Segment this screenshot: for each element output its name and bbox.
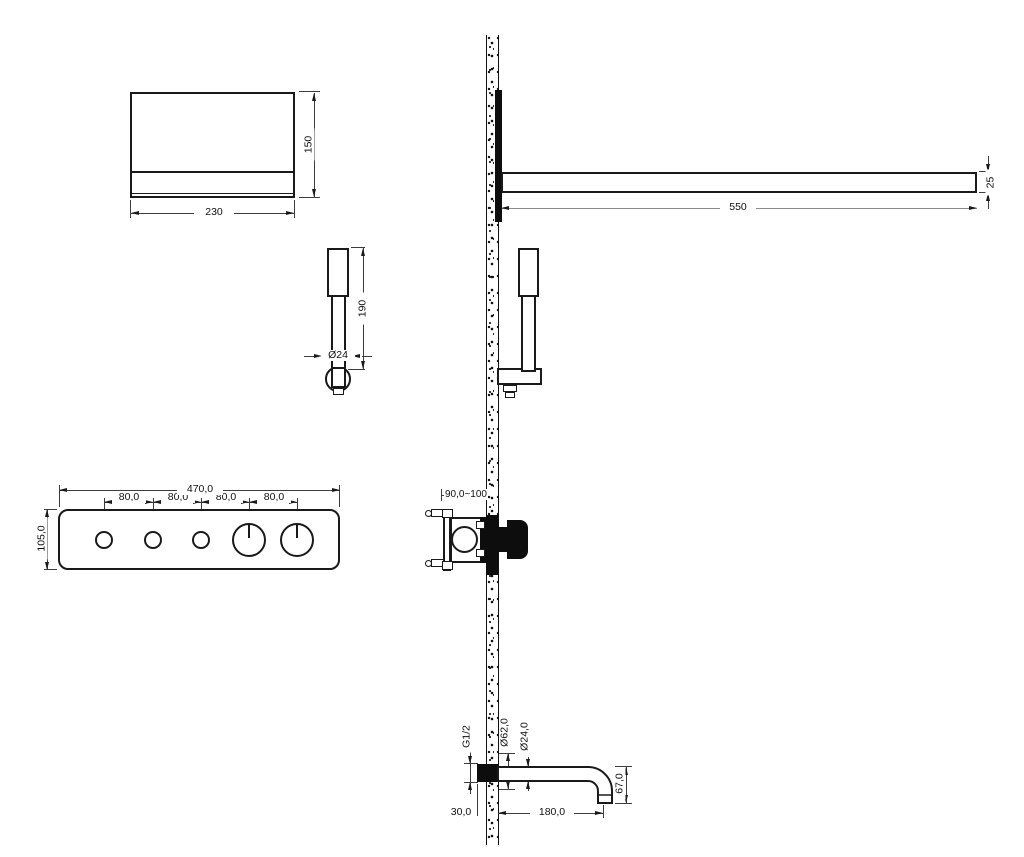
dim-knob-spacing-1: 80,0 (112, 492, 146, 503)
arrowhead (969, 206, 977, 210)
arrowhead (45, 562, 49, 570)
arrowhead (59, 488, 67, 492)
shower-head-rim-line (132, 193, 293, 194)
valve-knob (507, 520, 528, 559)
dim-install-depth: 90,0~100 (444, 489, 488, 500)
hand-shower-head (518, 248, 539, 297)
extension-line (603, 805, 604, 818)
valve-inlet-cap-bottom (425, 560, 432, 567)
knob-indicator-line (248, 524, 250, 538)
panel-button-1 (95, 531, 113, 549)
arrowhead (506, 781, 510, 789)
arrowhead (468, 756, 472, 764)
valve-clip-bottom (476, 549, 485, 557)
dim-panel-width: 470,0 (177, 484, 223, 495)
technical-drawing-canvas: 150 230 550 25 Ø24 (0, 0, 1024, 857)
arrowhead (498, 811, 506, 815)
dim-spout-thread: G1/2 (462, 721, 473, 753)
dim-panel-height: 105,0 (37, 518, 48, 560)
valve-clip-top (476, 521, 485, 529)
arrowhead (332, 488, 340, 492)
arrowhead (249, 500, 257, 504)
shower-head-body (130, 92, 295, 198)
dimension-line (304, 356, 314, 357)
spout-wall-fitting (477, 764, 498, 782)
arrowhead (468, 782, 472, 790)
arrowhead (201, 500, 209, 504)
dim-spout-wall-inset: 30,0 (445, 807, 477, 818)
dim-arm-thickness: 25 (986, 170, 997, 196)
bracket-outlet-tip (505, 392, 515, 398)
arrowhead (131, 211, 139, 215)
arrowhead (45, 509, 49, 517)
arrowhead (286, 211, 294, 215)
extension-line (130, 200, 131, 218)
arm-wall-mount-bar (495, 90, 502, 222)
arrowhead (145, 500, 153, 504)
arrowhead (595, 811, 603, 815)
extension-line (477, 784, 478, 816)
arrowhead (501, 206, 509, 210)
arrowhead (526, 759, 530, 767)
shower-arm-body (501, 172, 977, 193)
arrowhead (506, 753, 510, 761)
valve-bar-tab-bottom (442, 561, 453, 570)
dim-hand-shower-diameter: Ø24 (321, 350, 355, 361)
extension-line (294, 200, 295, 218)
valve-bar-tab-top (442, 509, 453, 518)
arrowhead (312, 189, 316, 197)
dim-arm-length: 550 (720, 202, 756, 213)
arrowhead (312, 93, 316, 101)
bracket-outlet-fitting (503, 385, 517, 392)
dim-spout-reach: 180,0 (530, 807, 574, 818)
valve-inlet-cap-top (425, 510, 432, 517)
arrowhead (104, 500, 112, 504)
valve-cartridge-circle (451, 526, 478, 553)
extension-line (299, 91, 320, 92)
wall-cutout-black (486, 515, 498, 575)
dim-spout-drop: 67,0 (615, 768, 626, 800)
spout-body (496, 764, 632, 806)
knob-indicator-line (296, 524, 298, 538)
panel-button-2 (144, 531, 162, 549)
dim-spout-pipe: Ø24,0 (520, 718, 531, 756)
dim-spout-flange: Ø62,0 (500, 714, 511, 752)
panel-button-3 (192, 531, 210, 549)
extension-line (348, 369, 365, 370)
arrowhead (526, 781, 530, 789)
arrowhead (361, 248, 365, 256)
dim-knob-spacing-4: 80,0 (257, 492, 291, 503)
hand-shower-inlet-tip (333, 388, 344, 395)
hand-shower-head (327, 248, 349, 297)
hand-shower-end-cap (331, 367, 346, 388)
hand-shower-handle (521, 295, 536, 372)
dim-hand-shower-length: 190 (358, 293, 369, 325)
dim-head-width: 230 (194, 207, 234, 218)
arrowhead (153, 500, 161, 504)
extension-line (299, 197, 320, 198)
dim-head-height: 150 (304, 129, 315, 161)
valve-knob-neck (498, 527, 507, 552)
arrowhead (361, 361, 365, 369)
shower-head-face-line (131, 171, 294, 173)
